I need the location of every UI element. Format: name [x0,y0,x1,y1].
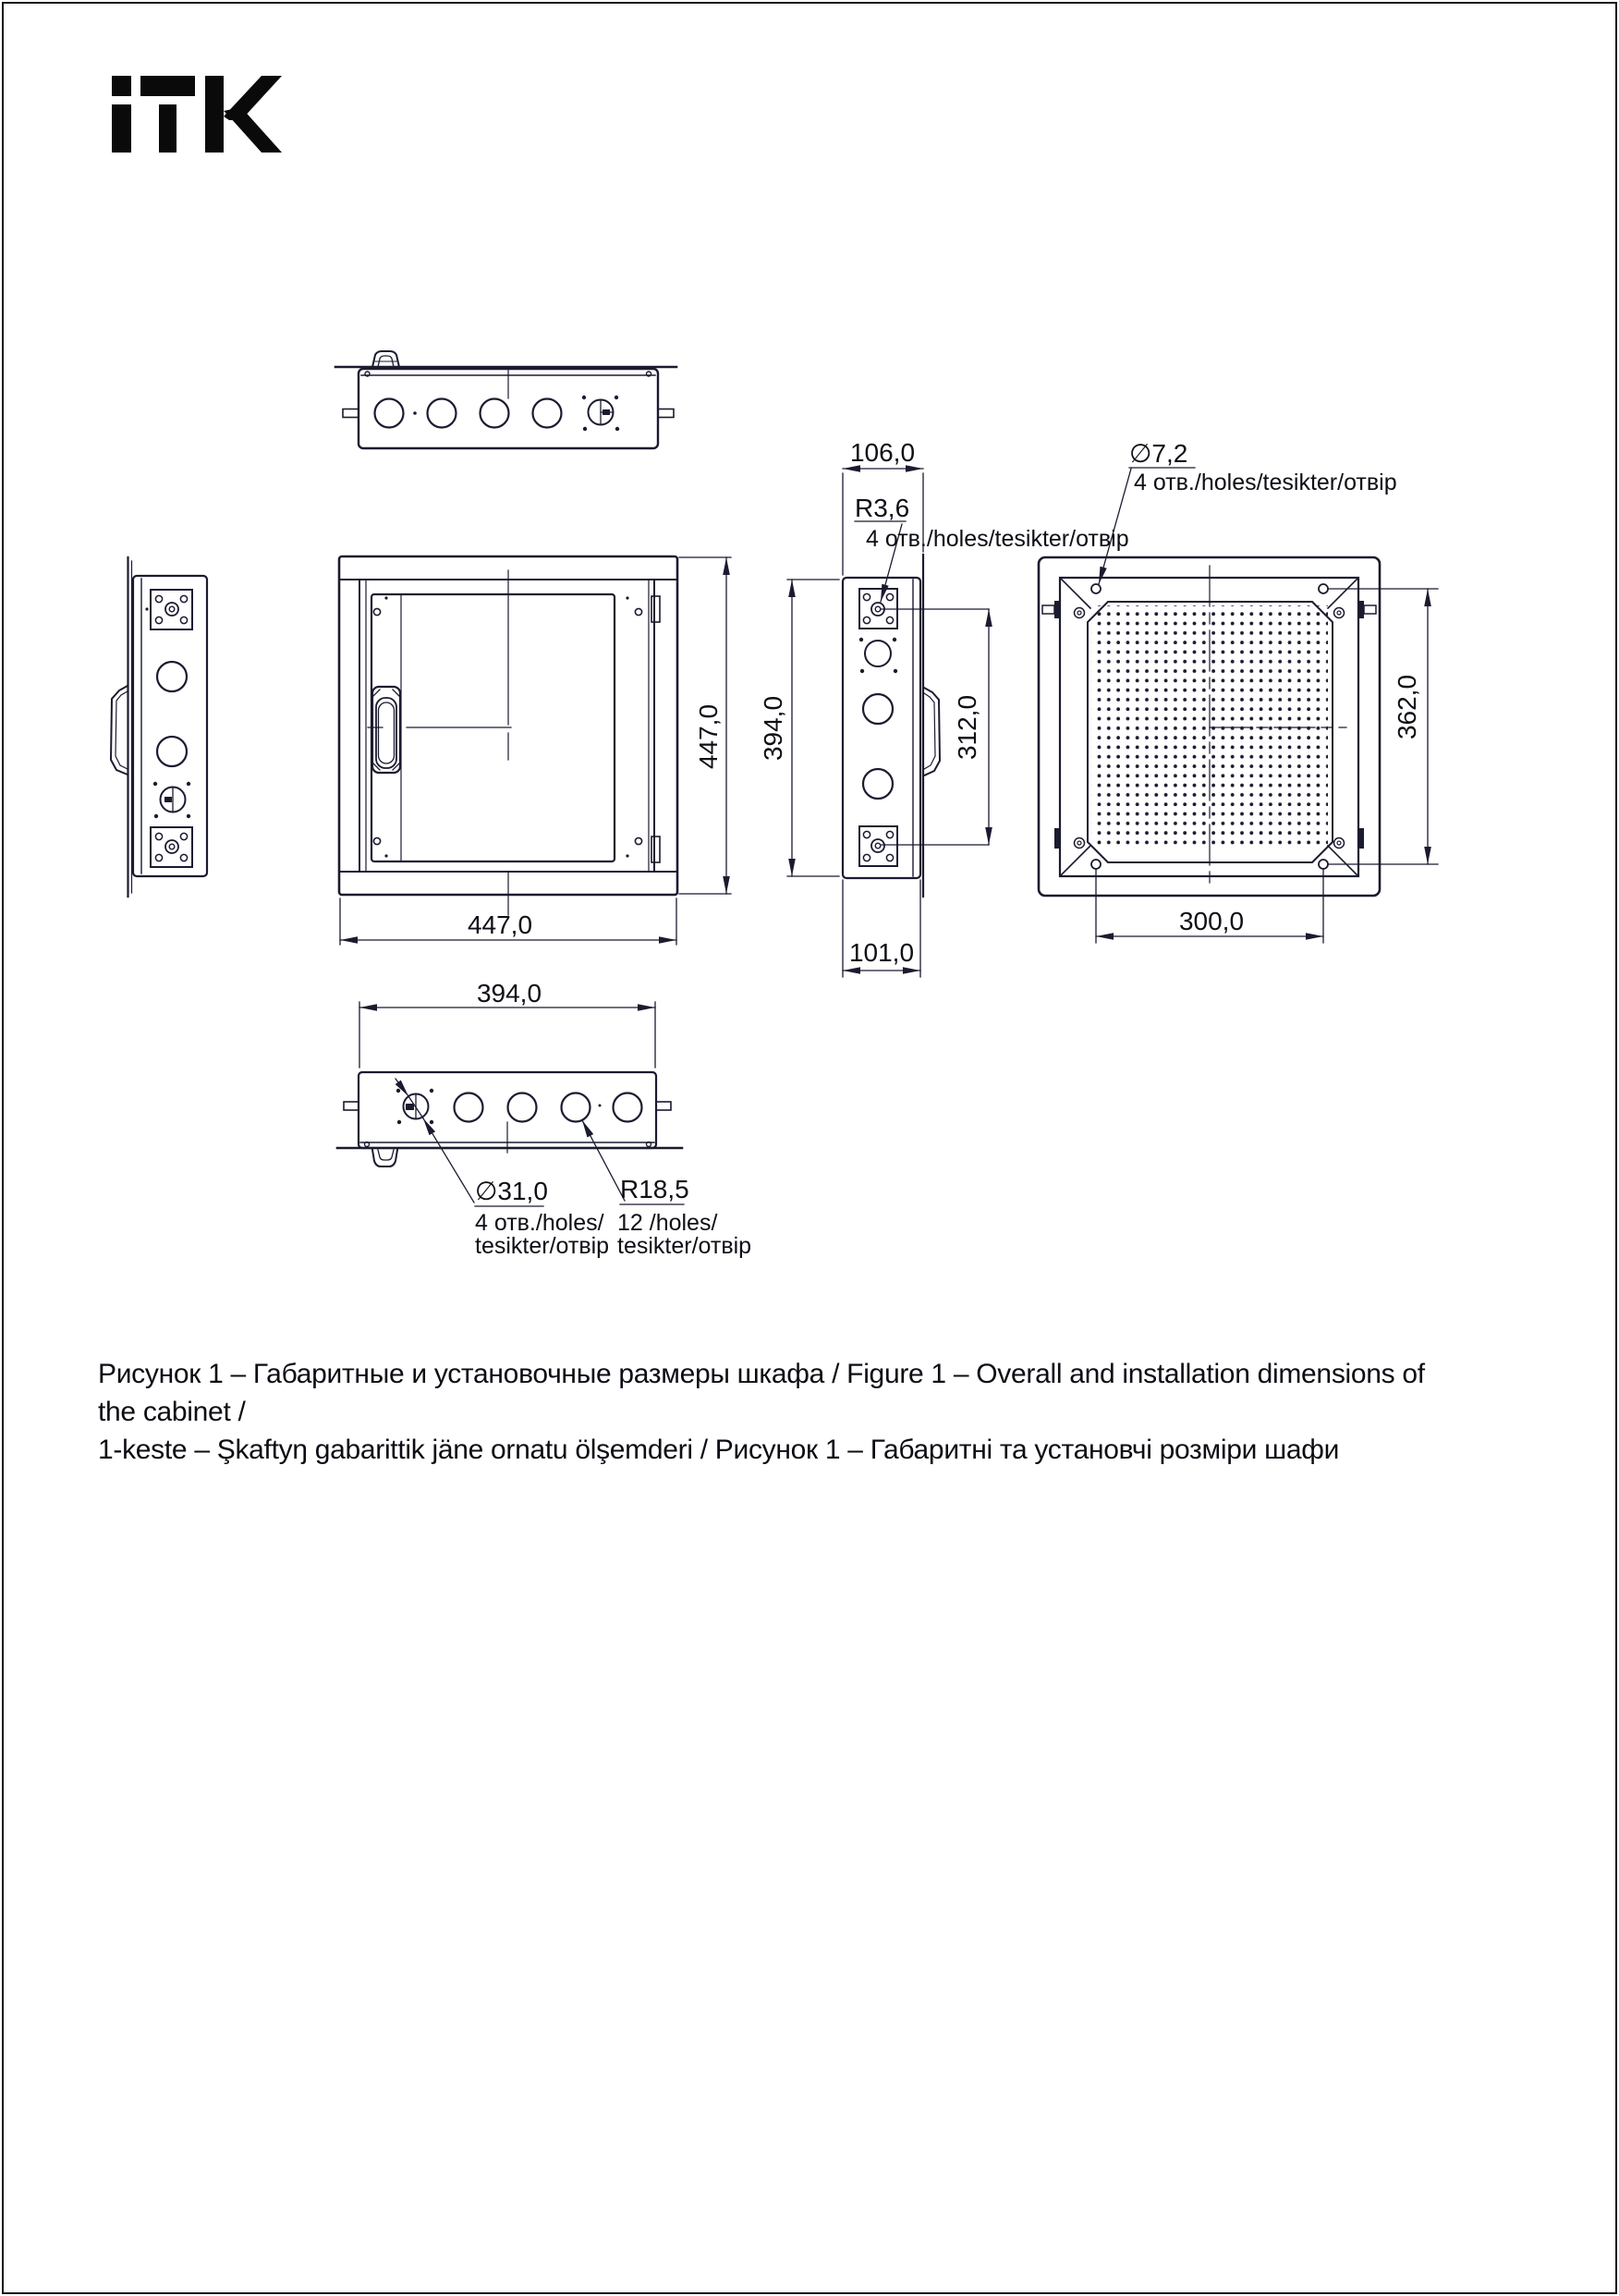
dim-300-label: 300,0 [1179,907,1244,935]
note-4holes-top: 4 отв./holes/tesikter/отвір [866,526,1129,552]
door-handle-profile [111,686,128,775]
dim-r185-label: R18,5 [620,1175,689,1203]
side-pin [1042,605,1054,614]
note-4holes-line2: tesikter/отвір [475,1233,609,1259]
mounting-hole [1319,584,1328,593]
cable-hole [533,399,562,428]
figure-caption-line1: Рисунок 1 – Габаритные и установочные ра… [98,1355,1466,1431]
mounting-hole [1091,584,1101,593]
mounting-hole [1091,860,1101,869]
side-pin [1364,605,1376,614]
note-4holes-back: 4 отв./holes/tesikter/отвір [1134,470,1397,495]
cabinet-drawing: 106,0 R3,6 4 отв./holes/tesikter/отвір ∅… [0,0,1619,1350]
hinge [651,596,660,622]
cable-hole [481,399,509,428]
back-view [1039,557,1380,896]
left-side-view [111,557,207,897]
cable-hole [375,399,404,428]
side-pin [656,1102,671,1110]
front-view [339,556,677,915]
cable-hole [428,399,456,428]
dim-plate-span-label: 312,0 [953,695,981,760]
hinge [651,837,660,862]
dim-101-label: 101,0 [849,938,914,967]
bottom-view [337,1072,682,1166]
cable-hole [614,1093,642,1122]
figure-caption: Рисунок 1 – Габаритные и установочные ра… [98,1355,1466,1469]
note-12holes-line1: 12 /holes/ [617,1210,717,1236]
note-12holes-line2: tesikter/отвір [617,1233,751,1259]
dim-front-width-label: 447,0 [468,910,532,939]
dim-dia72-label: ∅7,2 [1129,439,1187,468]
side-pin [344,1102,359,1110]
dim-side-height-label: 394,0 [759,696,787,761]
door-handle [372,687,400,773]
dim-bottom-width-label: 394,0 [477,979,542,1008]
document-page: 106,0 R3,6 4 отв./holes/tesikter/отвір ∅… [0,0,1619,2296]
side-pin [343,409,359,418]
dim-r36-label: R3,6 [855,494,909,522]
cable-hole [508,1093,537,1122]
dimension-labels: 106,0 R3,6 4 отв./holes/tesikter/отвір ∅… [468,438,1421,1259]
dim-362-label: 362,0 [1393,675,1421,739]
top-view [335,351,676,448]
mounting-hole [1319,860,1328,869]
dim-dia31-label: ∅31,0 [475,1177,548,1205]
side-pin [658,409,674,418]
note-4holes-line1: 4 отв./holes/ [475,1210,604,1236]
figure-caption-line2: 1-keste – Şkaftyŋ gabarittik jäne ornatu… [98,1431,1466,1469]
latch-top [372,351,399,367]
leader-r185 [582,1120,625,1201]
cable-hole [455,1093,483,1122]
cable-hole [562,1093,590,1122]
dim-106-label: 106,0 [850,438,915,467]
dim-front-height-label: 447,0 [694,704,723,769]
